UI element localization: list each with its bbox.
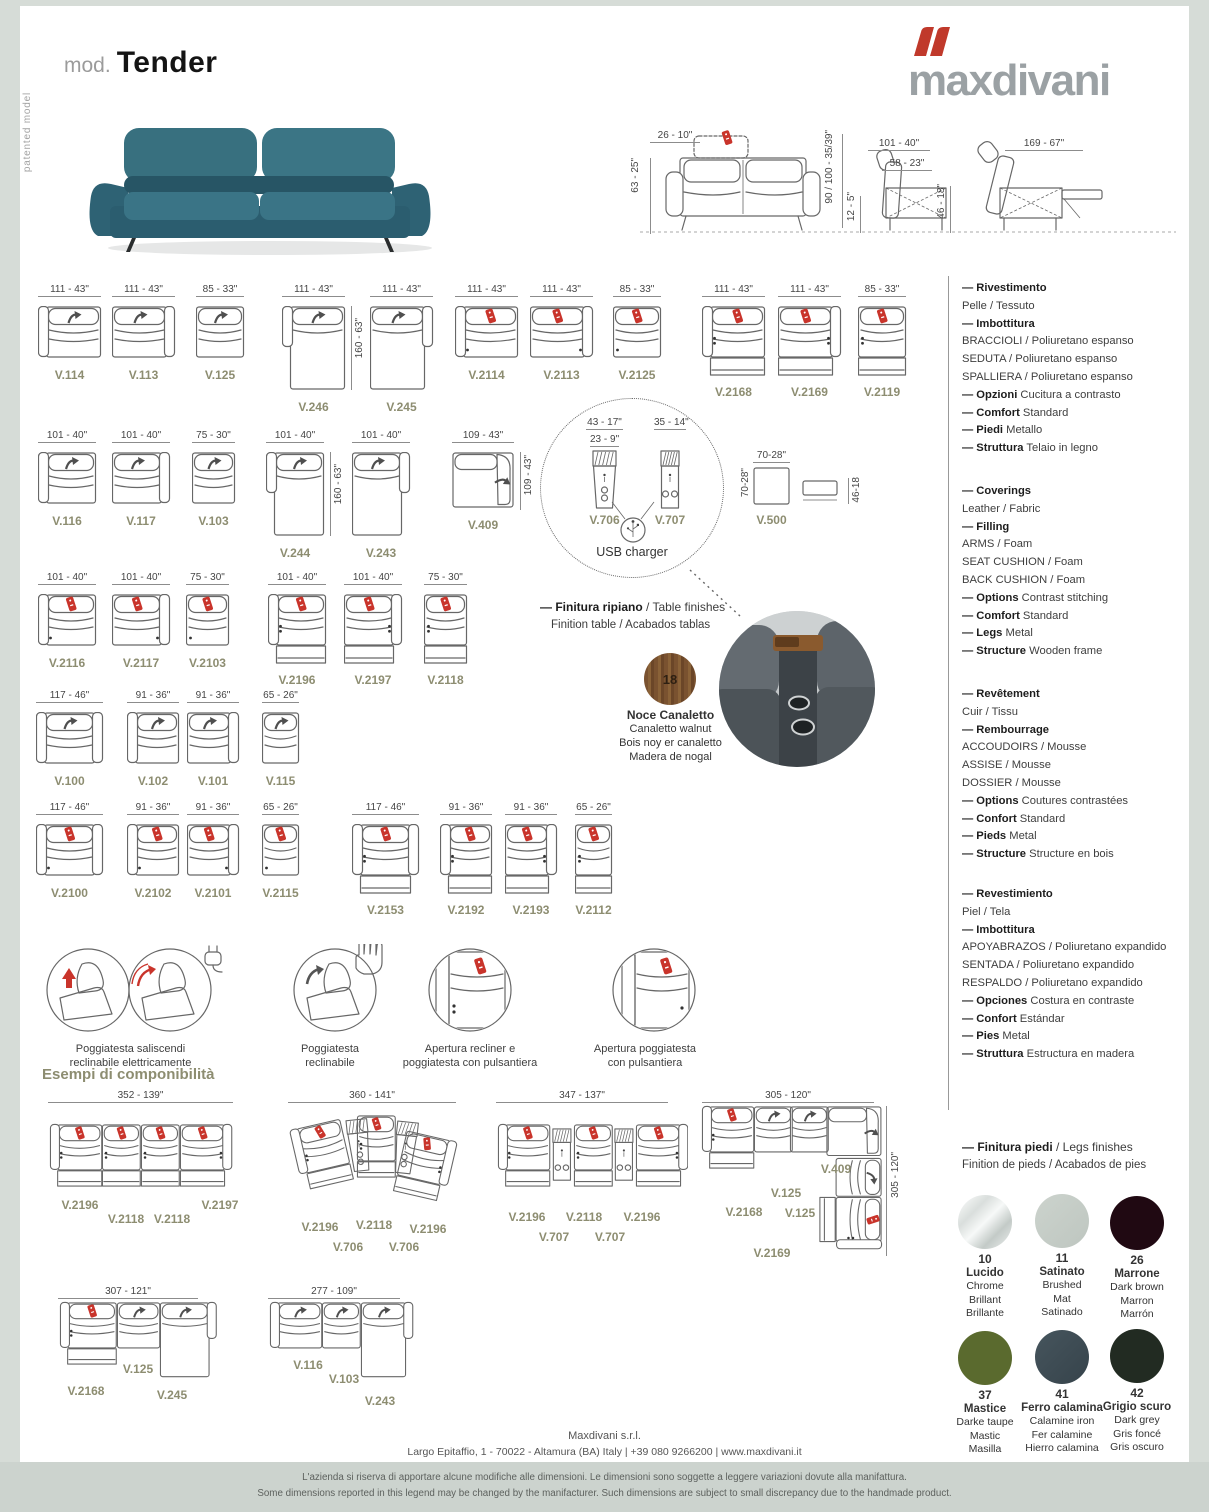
- module-dim: 101 - 40": [38, 572, 96, 585]
- module-dim: 91 - 36": [127, 802, 179, 815]
- feature-icon-electric-headrest: [44, 944, 232, 1036]
- module-label: V.243: [344, 546, 418, 560]
- swatch-name: Mastic: [943, 1430, 1027, 1444]
- module-label: V.117: [104, 514, 178, 528]
- module-label: V.246: [274, 400, 353, 414]
- disclaimer-it: L'azienda si riserva di apportare alcune…: [0, 1472, 1209, 1483]
- module-label: V.2113: [522, 368, 601, 382]
- module-diagram-V.2153: [352, 824, 421, 896]
- module-vdim: 160 - 63": [354, 318, 365, 358]
- footer-address: Largo Epitaffio, 1 - 70022 - Altamura (B…: [200, 1446, 1009, 1458]
- module-label: V.103: [320, 1372, 368, 1386]
- module-dim: 85 - 33": [613, 284, 661, 297]
- module-vdim: 70-28": [740, 468, 751, 497]
- dim-reclined: 169 - 67": [1005, 138, 1083, 151]
- module-dim: 277 - 109": [268, 1286, 400, 1299]
- module-label: V.2196: [404, 1222, 452, 1236]
- leg-swatch-11: [1035, 1194, 1089, 1248]
- module-label: V.409: [812, 1162, 860, 1176]
- module-label: V.2112: [567, 903, 620, 917]
- swatch-number: 10: [943, 1253, 1027, 1267]
- swatch-name: Satinato: [1020, 1266, 1104, 1280]
- module-diagram-V.125: [196, 306, 246, 361]
- spec-line: — Pies Metal: [962, 1028, 1192, 1046]
- leg-swatch-42: [1110, 1329, 1164, 1383]
- table-finish-subtitle: Finition table / Acabados tablas: [551, 619, 710, 631]
- module-label: V.2119: [850, 385, 914, 399]
- swatch-name: Grigio scuro: [1095, 1401, 1179, 1415]
- module-dim: 85 - 33": [196, 284, 244, 297]
- module-diagram-V.409: [452, 452, 516, 512]
- module-label: V.245: [148, 1388, 196, 1402]
- spec-line: — Confort Estándar: [962, 1011, 1192, 1029]
- module-label: V.125: [188, 368, 252, 382]
- module-dim: 23 - 9": [590, 434, 619, 447]
- spec-line: — Filling: [962, 519, 1192, 537]
- module-label: V.245: [362, 400, 441, 414]
- module-side-dim: 46-18: [851, 477, 862, 503]
- sofa-photo: [70, 100, 450, 260]
- composition-c2: [285, 1110, 465, 1212]
- dim-line: [520, 452, 521, 510]
- feature-icon-recliner-buttons: [424, 944, 516, 1036]
- module-diagram-V.2118: [424, 594, 469, 666]
- spec-line: APOYABRAZOS / Poliuretano expandido: [962, 939, 1192, 957]
- swatch-name: Marrone: [1095, 1268, 1179, 1282]
- module-label: V.2168: [720, 1205, 768, 1219]
- console-photo: [719, 611, 875, 767]
- module-dim: 101 - 40": [38, 430, 96, 443]
- swatch-name: Hierro calamina: [1020, 1442, 1104, 1456]
- module-dim: 117 - 46": [36, 802, 103, 815]
- swatch-name: Marron: [1095, 1295, 1179, 1309]
- module-diagram-V.2103: [186, 594, 231, 649]
- module-label: V.2192: [432, 903, 500, 917]
- spec-line: SPALLIERA / Poliuretano espanso: [962, 369, 1192, 387]
- model-prefix: mod.: [64, 54, 111, 77]
- module-dim: 111 - 43": [778, 284, 841, 297]
- dim-total-height: 90 / 100 - 35/39": [824, 130, 835, 204]
- usb-charger-label: USB charger: [572, 545, 692, 559]
- module-label: V.2153: [344, 903, 427, 917]
- spec-block-0: — RivestimentoPelle / Tessuto— Imbottitu…: [962, 280, 1192, 458]
- dim-line: [848, 478, 849, 504]
- dim-line: [842, 134, 843, 228]
- module-diagram-V.103: [192, 452, 237, 507]
- module-dim: 111 - 43": [282, 284, 345, 297]
- module-label: V.2100: [28, 886, 111, 900]
- dim-line: [351, 306, 352, 390]
- swatch-name: Brillante: [943, 1307, 1027, 1321]
- module-dim: 35 - 14": [654, 417, 686, 430]
- module-dim: 117 - 46": [352, 802, 419, 815]
- module-label: V.243: [356, 1394, 404, 1408]
- spec-line: — Rivestimento: [962, 280, 1192, 298]
- module-label: V.2118: [148, 1212, 196, 1226]
- spec-line: Pelle / Tessuto: [962, 298, 1192, 316]
- spec-line: Piel / Tela: [962, 904, 1192, 922]
- module-diagram-V.114: [38, 306, 103, 361]
- module-label: V.706: [324, 1240, 372, 1254]
- module-dim: 111 - 43": [702, 284, 765, 297]
- module-label: V.2118: [102, 1212, 150, 1226]
- module-label: V.2197: [196, 1198, 244, 1212]
- module-dim: 75 - 30": [186, 572, 229, 585]
- module-label: V.2196: [296, 1220, 344, 1234]
- spec-line: DOSSIER / Mousse: [962, 775, 1192, 793]
- spec-line: RESPALDO / Poliuretano expandido: [962, 975, 1192, 993]
- module-diagram-V.2101: [187, 824, 241, 879]
- module-label: V.2125: [605, 368, 669, 382]
- brand-icon: [912, 26, 952, 58]
- swatch-number: 37: [943, 1389, 1027, 1403]
- spec-line: — Coverings: [962, 483, 1192, 501]
- module-dim: 43 - 17": [586, 417, 623, 430]
- module-label: V.707: [586, 1230, 634, 1244]
- module-diagram-V.2169: [778, 306, 843, 378]
- module-diagram-V.2116: [38, 594, 98, 649]
- spec-line: — Options Contrast stitching: [962, 590, 1192, 608]
- module-label: V.2118: [350, 1218, 398, 1232]
- spec-line: — Structure Structure en bois: [962, 846, 1192, 864]
- module-label: V.125: [776, 1206, 824, 1220]
- spec-line: BACK CUSHION / Foam: [962, 572, 1192, 590]
- feature-caption: Apertura poggiatestacon pulsantiera: [570, 1042, 720, 1070]
- module-dim: 111 - 43": [455, 284, 518, 297]
- module-diagram-V.2196: [268, 594, 328, 666]
- module-label: V.2193: [497, 903, 565, 917]
- patented-model-label: patented model: [22, 92, 33, 172]
- dim-line: [330, 452, 331, 536]
- module-label: V.2169: [770, 385, 849, 399]
- module-label: V.2168: [694, 385, 773, 399]
- module-diagram-V.102: [127, 712, 181, 767]
- module-diagram-V.101: [187, 712, 241, 767]
- module-label: V.706: [380, 1240, 428, 1254]
- module-label: V.125: [762, 1186, 810, 1200]
- leg-swatch-label: 41Ferro calaminaCalamine ironFer calamin…: [1020, 1388, 1104, 1456]
- leg-swatch-37: [958, 1331, 1012, 1385]
- column-divider: [948, 276, 949, 1110]
- leg-swatch-26: [1110, 1196, 1164, 1250]
- module-label: V.2196: [56, 1198, 104, 1212]
- disclaimer-en: Some dimensions reported in this legend …: [0, 1488, 1209, 1499]
- module-dim: 101 - 40": [266, 430, 324, 443]
- module-dim: 109 - 43": [452, 430, 514, 443]
- swatch-name: Gris foncé: [1095, 1428, 1179, 1442]
- feature-icon-headrest-buttons: [608, 944, 700, 1036]
- module-label: V.2101: [179, 886, 247, 900]
- module-label: V.706: [578, 513, 631, 527]
- dim-line: [886, 1106, 887, 1256]
- spec-line: Leather / Fabric: [962, 501, 1192, 519]
- module-diagram-V.2193: [505, 824, 559, 896]
- spec-line: — Structure Wooden frame: [962, 643, 1192, 661]
- module-label: V.500: [744, 513, 799, 527]
- module-diagram-V.243: [352, 452, 412, 539]
- module-diagram-V.707: [660, 450, 682, 510]
- module-dim: 91 - 36": [187, 690, 239, 703]
- dim-line: [650, 158, 651, 234]
- module-diagram-V.2117: [112, 594, 172, 649]
- legs-finish-subtitle: Finition de pieds / Acabados de pies: [962, 1159, 1146, 1171]
- spec-block-1: — CoveringsLeather / Fabric— FillingARMS…: [962, 483, 1192, 661]
- feature-caption: Apertura recliner epoggiatesta con pulsa…: [395, 1042, 545, 1070]
- swatch-number: 26: [1095, 1254, 1179, 1268]
- module-diagram-V.2192: [440, 824, 494, 896]
- module-dim: 307 - 121": [58, 1286, 198, 1299]
- swatch-name: Chrome: [943, 1280, 1027, 1294]
- module-dim: 91 - 36": [505, 802, 557, 815]
- legs-finish-title: — Finitura piedi / Legs finishes: [962, 1140, 1133, 1154]
- module-label: V.116: [30, 514, 104, 528]
- spec-line: SENTADA / Poliuretano expandido: [962, 957, 1192, 975]
- module-dim: 305 - 120": [702, 1090, 874, 1103]
- module-diagram-V.2197: [344, 594, 404, 666]
- swatch-name: Satinado: [1020, 1306, 1104, 1320]
- composition-c4: [700, 1104, 896, 1254]
- module-diagram-V.2112: [575, 824, 614, 896]
- spec-line: — Options Coutures contrastées: [962, 793, 1192, 811]
- top-frame: [0, 0, 1209, 6]
- module-diagram-V.246: [282, 306, 347, 393]
- module-vdim: 160 - 63": [333, 464, 344, 504]
- module-dim: 101 - 40": [112, 572, 170, 585]
- module-label: V.2117: [104, 656, 178, 670]
- spec-block-3: — RevestimientoPiel / Tela— ImbottituraA…: [962, 886, 1192, 1064]
- module-diagram-V.2102: [127, 824, 181, 879]
- module-diagram-V.245: [370, 306, 435, 393]
- swatch-name: Marrón: [1095, 1308, 1179, 1322]
- dim-seat-height: 12 - 5": [846, 192, 857, 221]
- module-diagram-V.100: [36, 712, 105, 767]
- module-diagram-side-V.500: [802, 480, 840, 504]
- swatch-name: Ferro calamina: [1020, 1402, 1104, 1416]
- module-dim: 101 - 40": [344, 572, 402, 585]
- dim-line: [950, 186, 951, 233]
- module-dim: 91 - 36": [187, 802, 239, 815]
- module-dim: 111 - 43": [530, 284, 593, 297]
- dim-seat-h: 46 - 18": [936, 184, 947, 219]
- spec-line: — Revêtement: [962, 686, 1192, 704]
- page-title: mod.Tender: [64, 46, 217, 80]
- module-dim: 352 - 139": [48, 1090, 233, 1103]
- module-label: V.2103: [178, 656, 237, 670]
- swatch-name: Dark brown: [1095, 1281, 1179, 1295]
- leg-swatch-label: 42Grigio scuroDark greyGris foncéGris os…: [1095, 1387, 1179, 1455]
- module-dim: 111 - 43": [112, 284, 175, 297]
- module-label: V.102: [119, 774, 187, 788]
- swatch-number: 41: [1020, 1388, 1104, 1402]
- feature-icon-reclining-headrest: [280, 944, 390, 1036]
- swatch-name: Brillant: [943, 1294, 1027, 1308]
- module-label: V.2118: [416, 673, 475, 687]
- module-label: V.2196: [503, 1210, 551, 1224]
- module-dim: 75 - 30": [424, 572, 467, 585]
- module-label: V.707: [646, 513, 694, 527]
- module-label: V.2196: [260, 673, 334, 687]
- module-label: V.2168: [62, 1384, 110, 1398]
- swatch-name: Lucido: [943, 1267, 1027, 1281]
- module-diagram-V.113: [112, 306, 177, 361]
- module-diagram-V.244: [266, 452, 326, 539]
- spec-line: — Imbottitura: [962, 922, 1192, 940]
- spec-line: — Struttura Estructura en madera: [962, 1046, 1192, 1064]
- module-dim: 91 - 36": [440, 802, 492, 815]
- module-diagram-V.2125: [613, 306, 663, 361]
- spec-line: — Struttura Telaio in legno: [962, 440, 1192, 458]
- module-dim: 70-28": [753, 450, 790, 463]
- feature-caption: Poggiatestareclinabile: [270, 1042, 390, 1070]
- module-dim: 117 - 46": [36, 690, 103, 703]
- dim-depth: 101 - 40": [868, 138, 930, 151]
- leg-swatch-10: [958, 1195, 1012, 1249]
- module-label: V.125: [114, 1362, 162, 1376]
- module-dim: 101 - 40": [112, 430, 170, 443]
- left-frame: [0, 0, 20, 1512]
- module-label: V.2114: [447, 368, 526, 382]
- module-dim: 85 - 33": [858, 284, 906, 297]
- module-diagram-V.706: [592, 450, 619, 510]
- spec-line: SEAT CUSHION / Foam: [962, 554, 1192, 572]
- module-dim: 101 - 40": [352, 430, 410, 443]
- module-dim: 360 - 141": [288, 1090, 456, 1103]
- module-dim: 101 - 40": [268, 572, 326, 585]
- module-diagram-V.2113: [530, 306, 595, 361]
- disclaimer-band: L'azienda si riserva di apportare alcune…: [0, 1462, 1209, 1512]
- swatch-name: Mastice: [943, 1403, 1027, 1417]
- spec-sheet-page: mod.Tender patented model maxdivani: [0, 0, 1209, 1512]
- module-vdim: 109 - 43": [523, 455, 534, 495]
- footer-company: Maxdivani s.r.l.: [300, 1430, 909, 1442]
- spec-line: — Pieds Metal: [962, 828, 1192, 846]
- leg-swatch-label: 26MarroneDark brownMarronMarrón: [1095, 1254, 1179, 1322]
- spec-block-2: — RevêtementCuir / Tissu— RembourrageACC…: [962, 686, 1192, 864]
- module-dim: 347 - 137": [496, 1090, 668, 1103]
- module-diagram-V.116: [38, 452, 98, 507]
- swatch-name: Calamine iron: [1020, 1415, 1104, 1429]
- module-diagram-V.115: [262, 712, 301, 767]
- module-label: V.244: [258, 546, 332, 560]
- module-label: V.2196: [618, 1210, 666, 1224]
- spec-line: ASSISE / Mousse: [962, 757, 1192, 775]
- leg-swatch-label: 11SatinatoBrushedMatSatinado: [1020, 1252, 1104, 1320]
- spec-line: — Confort Standard: [962, 811, 1192, 829]
- module-label: V.114: [30, 368, 109, 382]
- module-dim: 65 - 26": [262, 690, 299, 703]
- module-label: V.2102: [119, 886, 187, 900]
- module-label: V.113: [104, 368, 183, 382]
- swatch-name: Darke taupe: [943, 1416, 1027, 1430]
- module-label: V.409: [444, 518, 522, 532]
- module-dim: 65 - 26": [575, 802, 612, 815]
- spec-line: BRACCIOLI / Poliuretano espanso: [962, 333, 1192, 351]
- module-label: V.116: [284, 1358, 332, 1372]
- module-dim: 111 - 43": [38, 284, 101, 297]
- spec-line: — Rembourrage: [962, 722, 1192, 740]
- spec-line: — Revestimiento: [962, 886, 1192, 904]
- module-diagram-V.2119: [858, 306, 908, 378]
- leg-swatch-41: [1035, 1330, 1089, 1384]
- module-label: V.101: [179, 774, 247, 788]
- module-diagram-V.2168: [702, 306, 767, 378]
- spec-line: — Comfort Standard: [962, 405, 1192, 423]
- swatch-name: Brushed: [1020, 1279, 1104, 1293]
- examples-title: Esempi di componibilità: [42, 1066, 215, 1083]
- swatch-name: Dark grey: [1095, 1414, 1179, 1428]
- wood-swatch-18: 18: [644, 653, 696, 705]
- spec-line: — Opciones Costura en contraste: [962, 993, 1192, 1011]
- module-diagram-V.117: [112, 452, 172, 507]
- module-diagram-V.2114: [455, 306, 520, 361]
- module-diagram-V.2100: [36, 824, 105, 879]
- swatch-name: Fer calamine: [1020, 1429, 1104, 1443]
- module-dim: 75 - 30": [192, 430, 235, 443]
- right-frame: [1189, 0, 1209, 1512]
- module-label: V.2116: [30, 656, 104, 670]
- composition-c3: [496, 1122, 688, 1192]
- spec-line: ARMS / Foam: [962, 536, 1192, 554]
- module-label: V.2169: [748, 1246, 796, 1260]
- spec-line: — Piedi Metallo: [962, 422, 1192, 440]
- spec-line: Cuir / Tissu: [962, 704, 1192, 722]
- composition-c1: [48, 1122, 243, 1192]
- module-label: V.2118: [560, 1210, 608, 1224]
- module-label: V.707: [530, 1230, 578, 1244]
- swatch-name: Mat: [1020, 1293, 1104, 1307]
- spec-line: — Imbottitura: [962, 316, 1192, 334]
- module-dim: 91 - 36": [127, 690, 179, 703]
- module-diagram-V.2115: [262, 824, 301, 879]
- table-finish-title: — Finitura ripiano / Table finishes: [540, 600, 725, 614]
- dim-line: [860, 196, 861, 233]
- dim-headrest: 26 - 10": [650, 130, 700, 143]
- module-label: V.103: [184, 514, 243, 528]
- dim-seat-depth: 58 - 23": [882, 158, 932, 171]
- spec-line: ACCOUDOIRS / Mousse: [962, 739, 1192, 757]
- model-name: Tender: [117, 46, 218, 79]
- swatch-number: 11: [1020, 1252, 1104, 1266]
- dim-height: 63 - 25": [630, 158, 641, 193]
- spec-line: — Legs Metal: [962, 625, 1192, 643]
- module-label: V.2197: [336, 673, 410, 687]
- composition-vdim: 305 - 120": [890, 1152, 901, 1198]
- module-dim: 65 - 26": [262, 802, 299, 815]
- swatch-number: 42: [1095, 1387, 1179, 1401]
- module-label: V.115: [254, 774, 307, 788]
- module-dim: 111 - 43": [370, 284, 433, 297]
- module-diagram-V.500: [753, 467, 792, 507]
- spec-line: SEDUTA / Poliuretano espanso: [962, 351, 1192, 369]
- module-label: V.100: [28, 774, 111, 788]
- spec-line: — Opzioni Cucitura a contrasto: [962, 387, 1192, 405]
- leg-swatch-label: 10LucidoChromeBrillantBrillante: [943, 1253, 1027, 1321]
- spec-line: — Comfort Standard: [962, 608, 1192, 626]
- swatch-name: Gris oscuro: [1095, 1441, 1179, 1455]
- brand-wordmark: maxdivani: [908, 56, 1110, 106]
- module-label: V.2115: [254, 886, 307, 900]
